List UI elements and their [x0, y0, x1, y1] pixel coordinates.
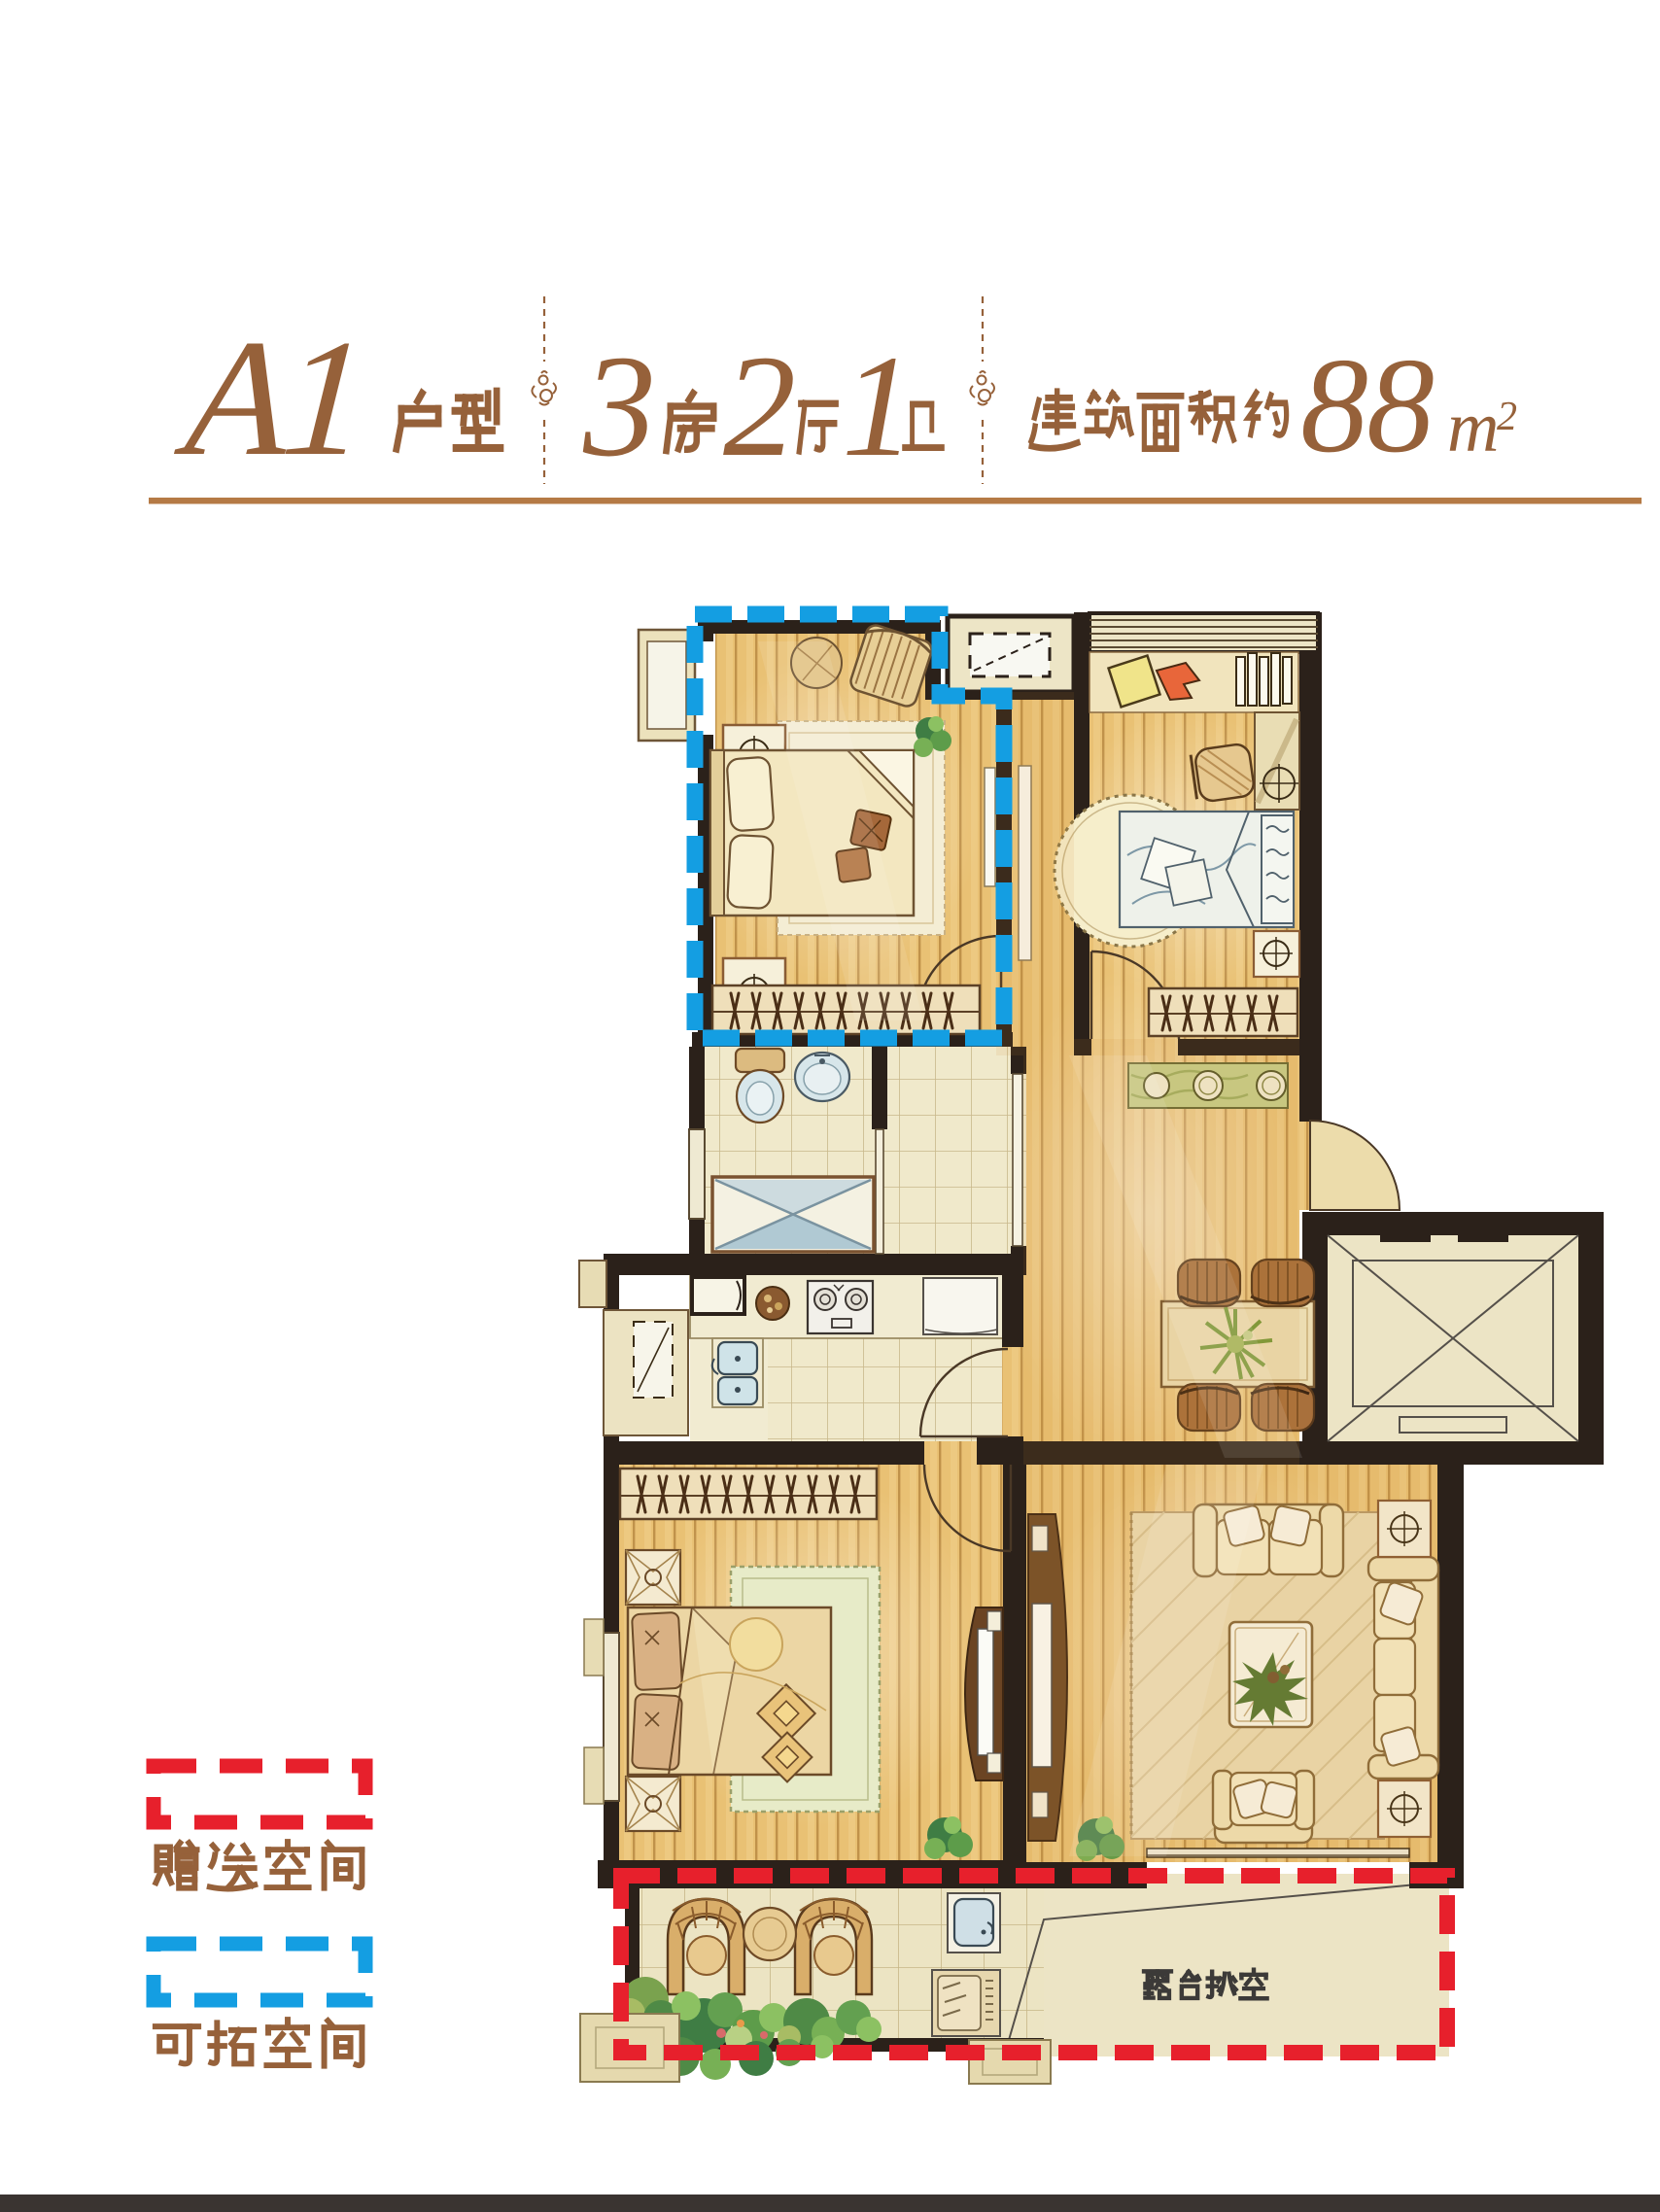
svg-text:A1: A1 — [171, 306, 367, 491]
svg-text:3: 3 — [582, 326, 656, 487]
svg-text:88: 88 — [1300, 330, 1434, 481]
svg-text:2: 2 — [1497, 395, 1517, 439]
svg-text:m: m — [1447, 388, 1499, 467]
svg-text:2: 2 — [723, 326, 796, 487]
svg-text:1: 1 — [842, 326, 915, 487]
